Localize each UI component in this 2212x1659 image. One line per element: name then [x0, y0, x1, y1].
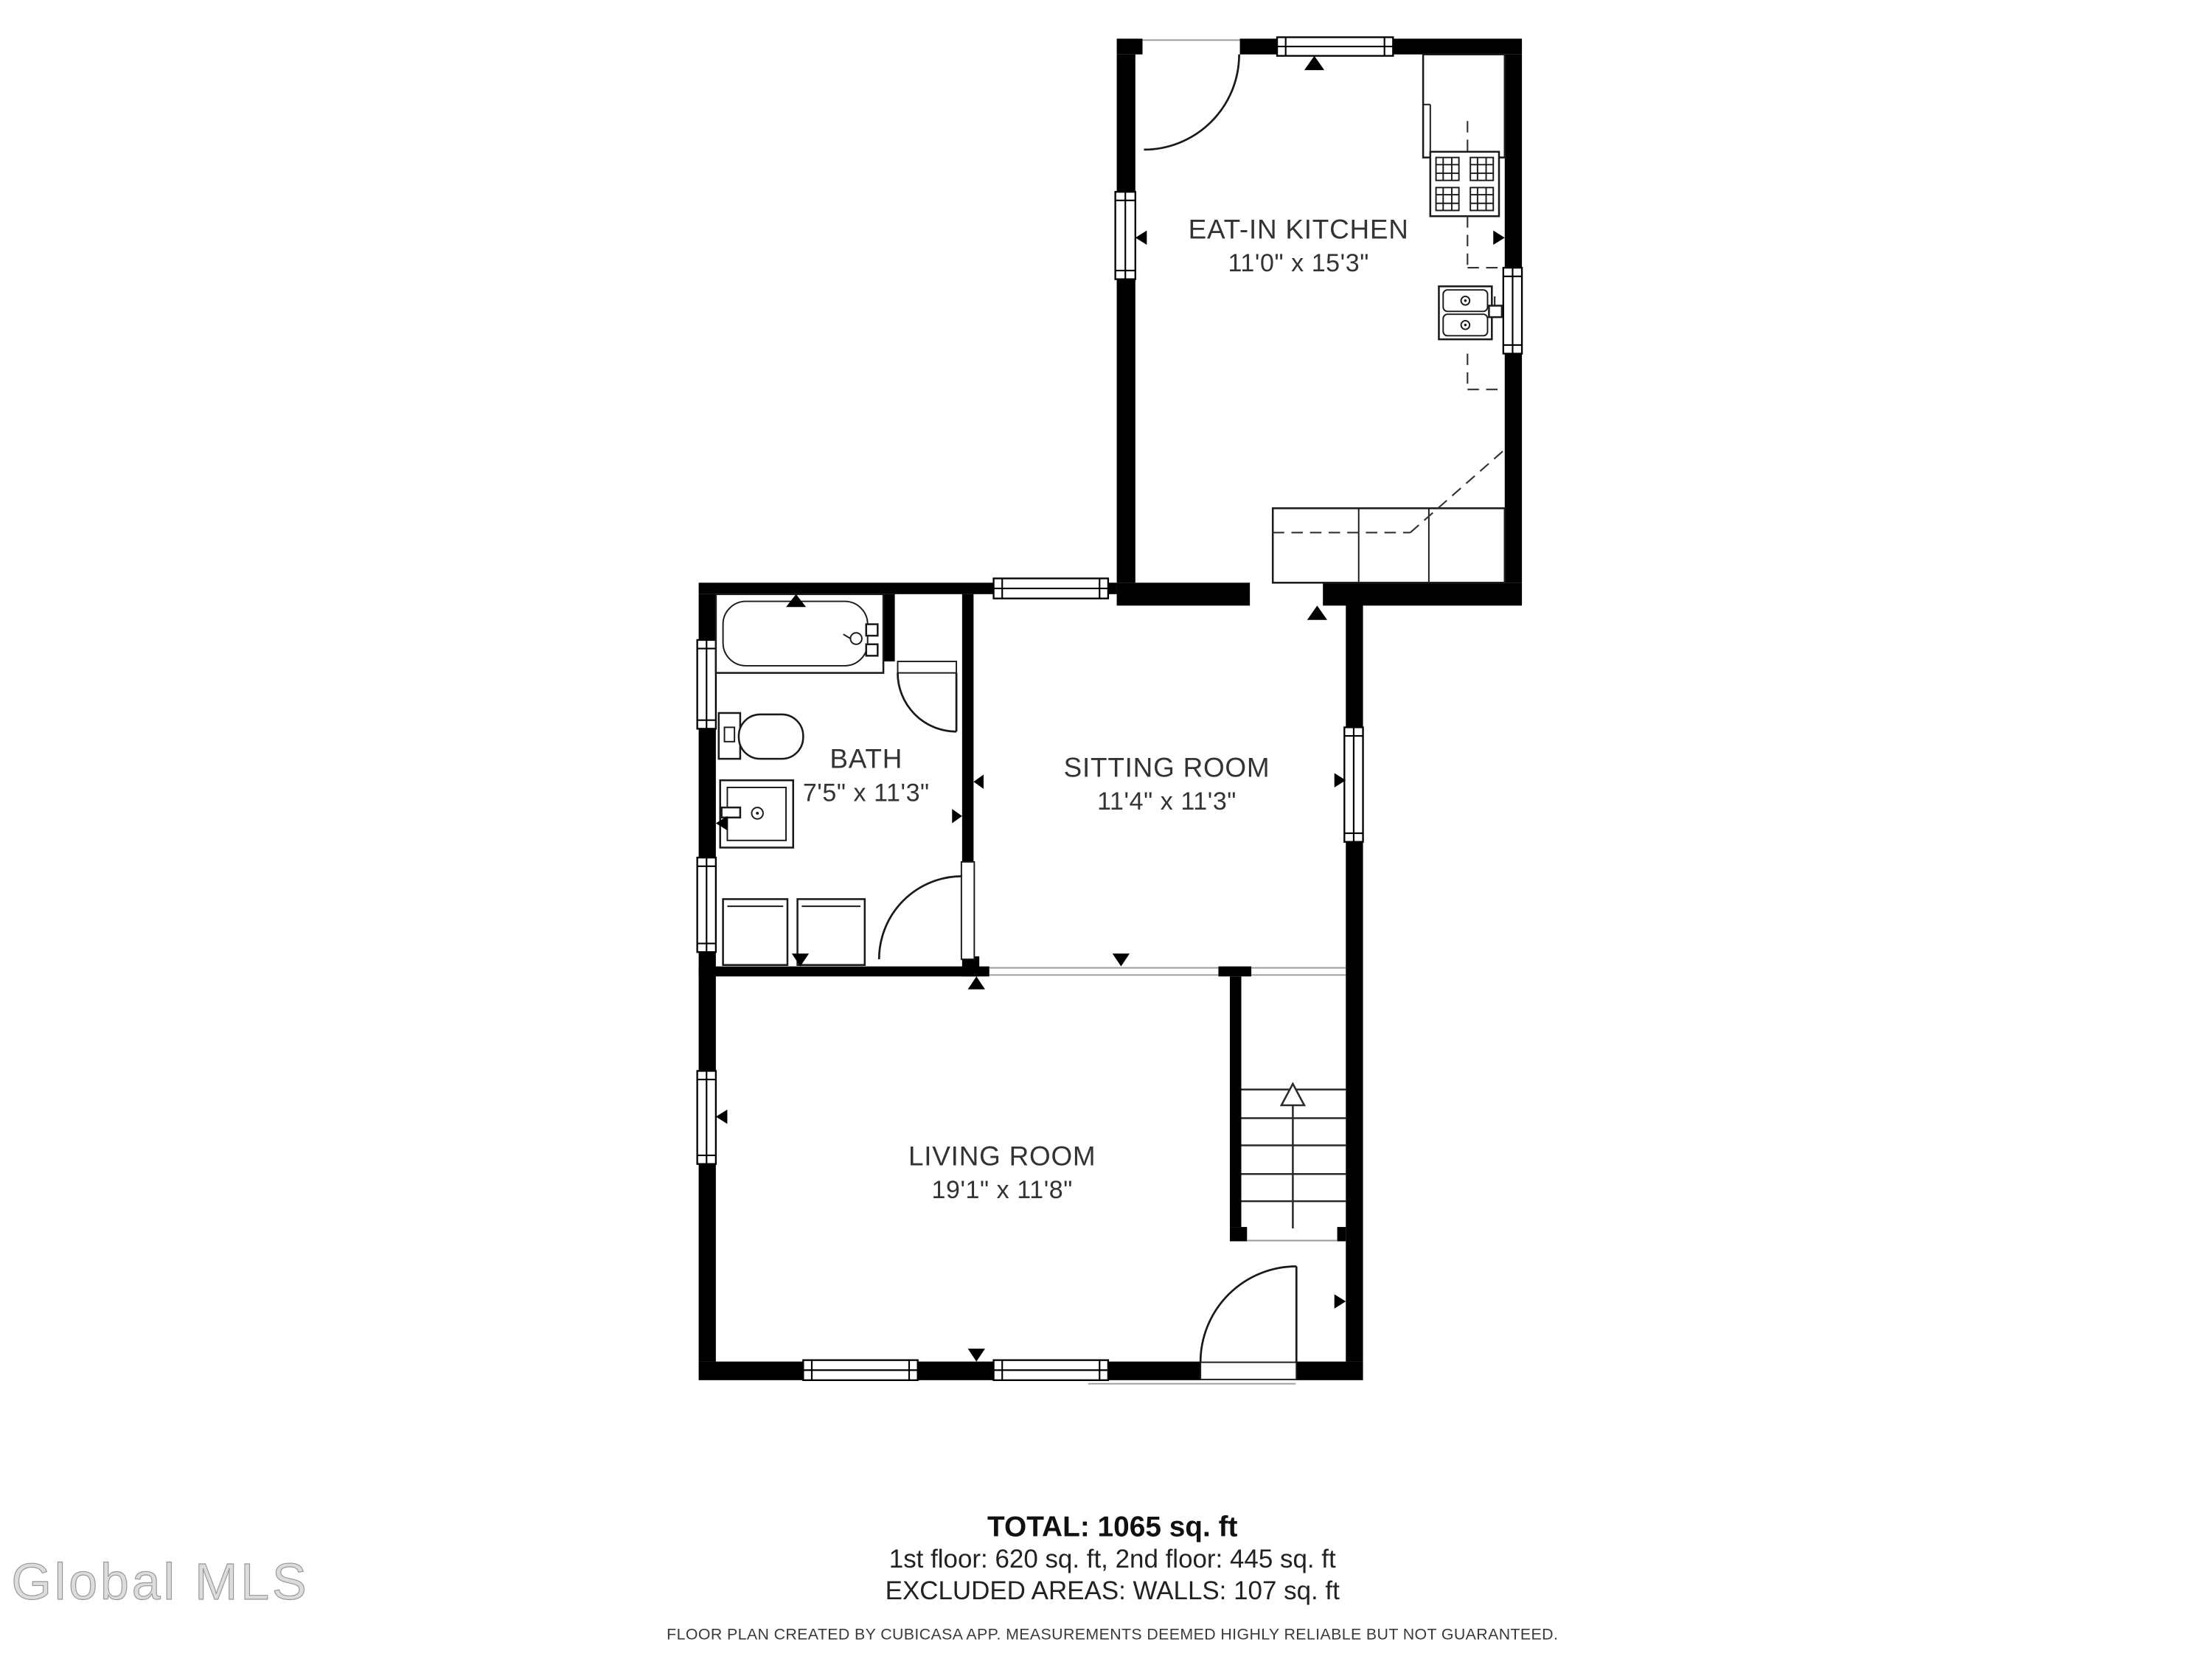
kitchen-counter — [1273, 508, 1505, 582]
excluded-areas-text: EXCLUDED AREAS: WALLS: 107 sq. ft — [886, 1576, 1340, 1605]
summary-block: TOTAL: 1065 sq. ft 1st floor: 620 sq. ft… — [667, 1511, 1558, 1643]
floorplan-canvas: EAT-IN KITCHEN 11'0" x 15'3" BATH 7'5" x… — [0, 0, 2212, 1659]
room-dims-bath: 7'5" x 11'3" — [803, 779, 930, 807]
room-label-bath: BATH — [829, 744, 902, 774]
opening-marker-icon — [1307, 605, 1327, 619]
window-icon — [1116, 192, 1135, 279]
opening-marker-icon — [1335, 1294, 1346, 1308]
room-label-living-room: LIVING ROOM — [908, 1141, 1096, 1172]
window-icon — [698, 1071, 716, 1164]
opening-marker-icon — [1135, 231, 1147, 245]
sink-icon — [720, 780, 793, 847]
stairs-up-arrow-icon — [1281, 1084, 1304, 1228]
opening-marker-icon — [968, 976, 985, 989]
total-area-text: TOTAL: 1065 sq. ft — [987, 1511, 1238, 1543]
room-label-kitchen: EAT-IN KITCHEN — [1189, 214, 1409, 244]
window-icon — [698, 640, 716, 728]
door-swing-icon — [1144, 55, 1239, 150]
fridge-counter-icon — [1423, 55, 1505, 158]
washer-icon — [723, 899, 787, 964]
opening-marker-icon — [1493, 231, 1505, 245]
door-swing-icon — [879, 862, 974, 959]
kitchen-fixtures — [1273, 55, 1505, 583]
window-icon — [1344, 727, 1363, 841]
opening-marker-icon — [716, 1110, 728, 1124]
opening-marker-icon — [1304, 56, 1324, 70]
window-icon — [994, 578, 1108, 598]
floor-areas-text: 1st floor: 620 sq. ft, 2nd floor: 445 sq… — [889, 1545, 1336, 1573]
room-labels: EAT-IN KITCHEN 11'0" x 15'3" BATH 7'5" x… — [803, 214, 1409, 1204]
opening-marker-icon — [952, 809, 962, 823]
room-label-sitting-room: SITTING ROOM — [1064, 752, 1270, 782]
opening-markers — [716, 56, 1505, 1362]
opening-marker-icon — [1113, 953, 1130, 966]
room-dims-living-room: 19'1" x 11'8" — [932, 1176, 1073, 1204]
window-icon — [1277, 37, 1393, 55]
window-icon — [698, 858, 716, 952]
room-dims-kitchen: 11'0" x 15'3" — [1228, 249, 1368, 277]
kitchen-sink-icon — [1439, 286, 1501, 339]
room-dims-sitting-room: 11'4" x 11'3" — [1097, 787, 1237, 815]
stove-icon — [1430, 152, 1499, 216]
door-swing-icon — [897, 661, 956, 731]
disclaimer-text: FLOOR PLAN CREATED BY CUBICASA APP. MEAS… — [667, 1625, 1558, 1643]
toilet-icon — [719, 713, 804, 759]
watermark-logo: Global MLS — [12, 1553, 310, 1610]
door-swing-icon — [1200, 1266, 1296, 1379]
window-icon — [803, 1360, 917, 1380]
opening-marker-icon — [973, 774, 984, 788]
opening-marker-icon — [968, 1349, 985, 1361]
window-icon — [1503, 268, 1522, 354]
staircase — [1241, 1084, 1346, 1228]
window-icon — [994, 1360, 1108, 1380]
